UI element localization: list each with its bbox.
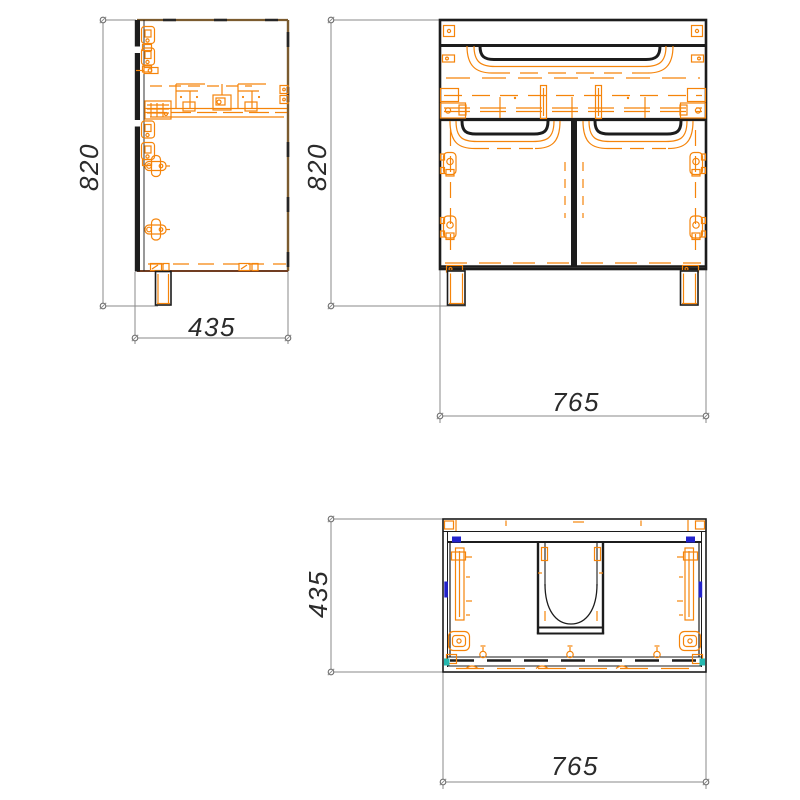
front-view: 820 765 [302,17,709,423]
front-width-dimension: 765 [437,270,709,423]
top-view: 435 765 [303,516,709,789]
side-view: 820 435 [74,17,291,344]
side-cabinet-outline [137,20,288,271]
drawing-canvas: 820 435 [0,0,800,800]
side-drawer-slide-assembly [145,84,288,119]
top-width-label: 765 [551,751,599,781]
side-height-label: 820 [74,143,104,191]
vanity-cabinet-three-view-drawing: 820 435 [0,0,800,800]
front-height-label: 820 [302,143,332,191]
side-cross-hinge-lower [145,219,170,240]
front-left-leg [448,271,466,305]
side-leg [156,272,172,306]
top-depth-dimension: 435 [303,516,443,675]
top-width-dimension: 765 [440,672,709,789]
front-door-divider [571,121,577,267]
side-door-panel [134,20,144,272]
side-hinge-cups-mid [142,121,155,166]
front-cabinet-outline [440,20,706,269]
top-depth-label: 435 [303,570,333,618]
front-width-label: 765 [552,387,600,417]
side-bottom-rail-fittings [148,264,286,271]
side-depth-label: 435 [188,312,236,342]
front-right-leg [681,271,699,305]
